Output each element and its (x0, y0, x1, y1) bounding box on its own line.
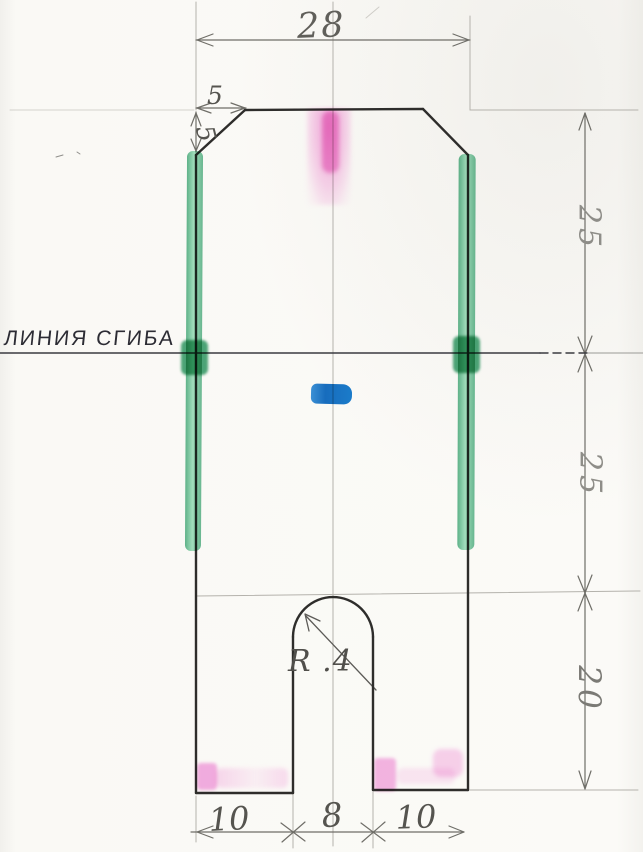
fold-line-label: ЛИНИЯ СГИБА (3, 327, 177, 351)
shape-outline (196, 109, 468, 793)
dim-upper-height-label: 25 (572, 205, 607, 251)
construction-lines (10, 2, 640, 848)
dim-bottom-left-label: 10 (208, 799, 251, 839)
drawing-linework (0, 0, 643, 852)
dim-top-width-label: 28 (296, 5, 346, 47)
dim-chamfer-width-label: 5 (207, 81, 223, 110)
dimension-lines (191, 34, 592, 842)
notch-radius-label: R .4 (288, 644, 353, 679)
dim-middle-height-label: 25 (573, 452, 608, 498)
dim-bottom-right-label: 10 (395, 797, 437, 836)
dim-notch-width-label: 8 (320, 795, 344, 835)
pattern-drawing-sheet: 28 5 5 25 25 20 ЛИНИЯ СГИБА R .4 10 8 10 (0, 0, 643, 852)
dim-lower-height-label: 20 (571, 665, 607, 712)
